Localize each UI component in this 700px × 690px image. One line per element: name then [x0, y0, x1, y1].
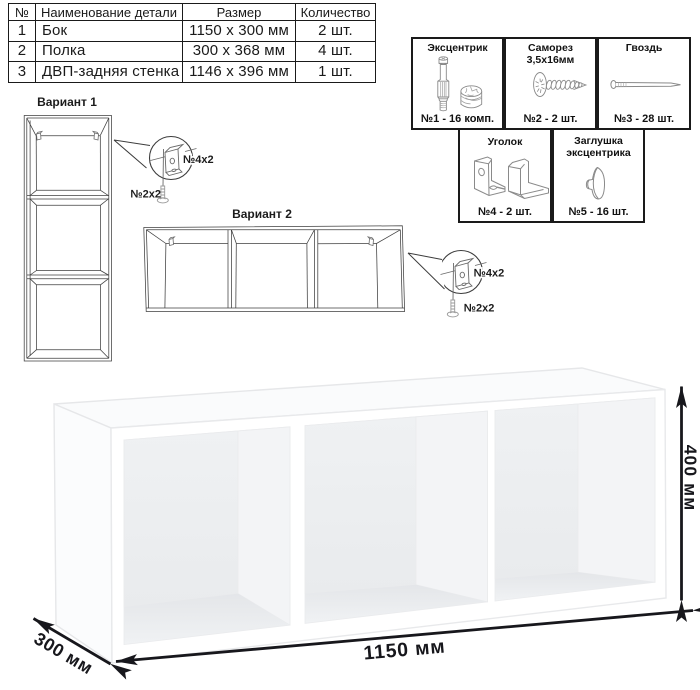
svg-text:400 мм: 400 мм — [681, 445, 700, 512]
svg-text:№4х2: №4х2 — [474, 268, 505, 280]
svg-text:Вариант 1: Вариант 1 — [37, 95, 97, 109]
svg-text:№2х2: №2х2 — [464, 303, 495, 315]
svg-text:№2х2: №2х2 — [130, 189, 161, 201]
svg-text:№4х2: №4х2 — [183, 154, 214, 166]
svg-text:Вариант 2: Вариант 2 — [232, 207, 292, 221]
